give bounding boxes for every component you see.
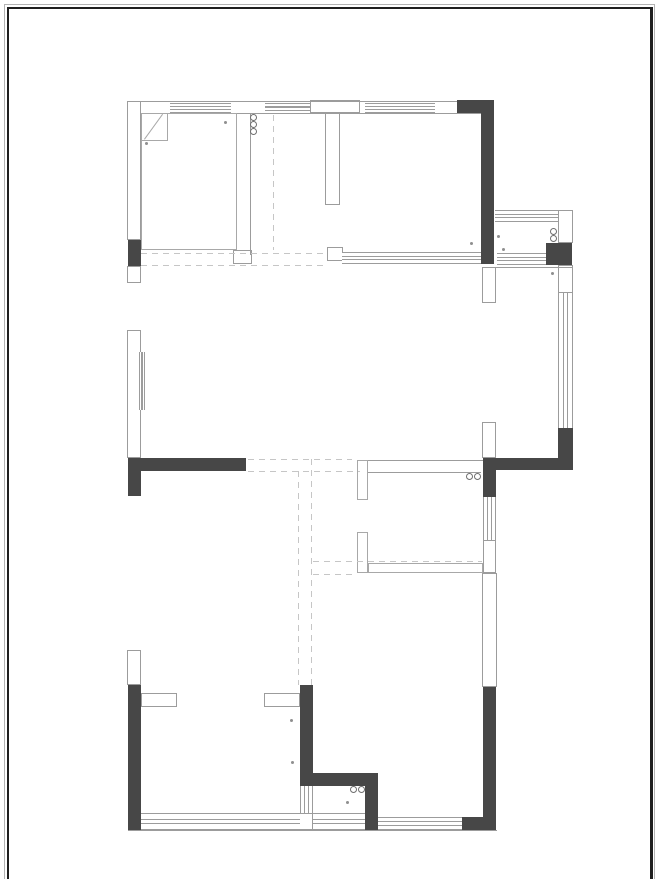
pier-t-stem — [325, 113, 340, 205]
pier-platform-right-top — [558, 210, 573, 243]
wall-bottomright-vertical — [483, 687, 496, 830]
wall-right-segment-1 — [483, 540, 496, 573]
line-top-outer — [128, 101, 457, 102]
door-track-left — [139, 352, 145, 410]
wall-left-block — [128, 240, 141, 266]
window-bottommid — [300, 786, 313, 813]
wall-right-segment-2 — [482, 573, 497, 687]
bath-jamb-upper — [357, 460, 368, 500]
window-top-1 — [170, 103, 231, 113]
window-right — [558, 293, 573, 428]
bath-jamb-lower — [357, 532, 368, 573]
stub-wall-bottommid — [264, 693, 300, 707]
wall-midleft-block — [128, 458, 141, 496]
marker-dot — [290, 719, 293, 722]
line-bottom-outer — [128, 830, 497, 831]
window-platform-bottom — [497, 253, 546, 265]
marker-dot — [346, 801, 349, 804]
window-bottom-1 — [141, 813, 300, 830]
wall-bottommid-vertical-2 — [365, 786, 378, 830]
window-top-2 — [265, 103, 310, 111]
fixture-circle — [250, 121, 257, 128]
pier-right-mid — [482, 422, 496, 458]
line-mid-boundary — [357, 460, 483, 461]
line-platform-bottom — [483, 267, 573, 268]
wall-bottomright-foot — [462, 817, 483, 830]
hidden-line-vert-2 — [311, 459, 312, 685]
stub-wall-bottomleft — [141, 693, 177, 707]
jamb-topright-room — [327, 247, 343, 261]
window-top-3 — [365, 103, 435, 113]
marker-dot — [551, 272, 554, 275]
wall-midleft-horizontal — [128, 458, 246, 471]
marker-dot — [224, 121, 227, 124]
marker-dot — [502, 248, 505, 251]
pier-right-upper — [482, 267, 496, 303]
marker-dot — [470, 242, 473, 245]
wall-midright-horizontal — [483, 458, 573, 470]
hidden-line-roomB — [273, 115, 274, 250]
pier-left-bottom — [127, 650, 141, 685]
hidden-line-top-2 — [141, 265, 328, 266]
fixture-circle — [550, 235, 557, 242]
pier-platform-right-bottom — [558, 265, 573, 293]
wall-topright-vertical — [481, 100, 494, 264]
bath-bottom-wall — [368, 563, 483, 573]
wall-band-topright-room — [342, 252, 481, 264]
hidden-line-mid-1 — [248, 459, 352, 460]
wall-bottommid-horizontal — [300, 773, 378, 786]
fixture-circle — [350, 786, 357, 793]
hidden-line-top-1 — [141, 253, 328, 254]
window-bath-right — [483, 497, 496, 540]
fixture-circle — [474, 473, 481, 480]
wall-bottommid-vertical-1 — [300, 685, 313, 775]
marker-dot — [145, 142, 148, 145]
pier-bottom-window — [298, 813, 313, 830]
window-platform-top — [495, 210, 558, 222]
fixture-circle — [250, 114, 257, 121]
fixture-circle — [358, 786, 365, 793]
marker-dot — [291, 761, 294, 764]
hidden-line-bath-1 — [313, 561, 482, 562]
hidden-line-vert-1 — [298, 471, 299, 685]
pier-left-top — [127, 101, 141, 240]
hidden-line-mid-2 — [248, 471, 360, 472]
pier-left-small — [127, 266, 141, 283]
fixture-circle — [250, 128, 257, 135]
fixture-circle — [466, 473, 473, 480]
floor-plan-page — [0, 0, 660, 879]
window-bottom-2 — [313, 813, 365, 830]
wall-midright-step — [483, 458, 496, 497]
wall-platform-corner — [546, 243, 572, 265]
wall-bottomleft-vertical — [128, 685, 141, 830]
fixture-circle — [550, 228, 557, 235]
hidden-line-bath-2 — [313, 574, 357, 575]
marker-dot — [497, 235, 500, 238]
line-bath-top — [368, 472, 481, 473]
window-bottom-3 — [378, 817, 462, 830]
